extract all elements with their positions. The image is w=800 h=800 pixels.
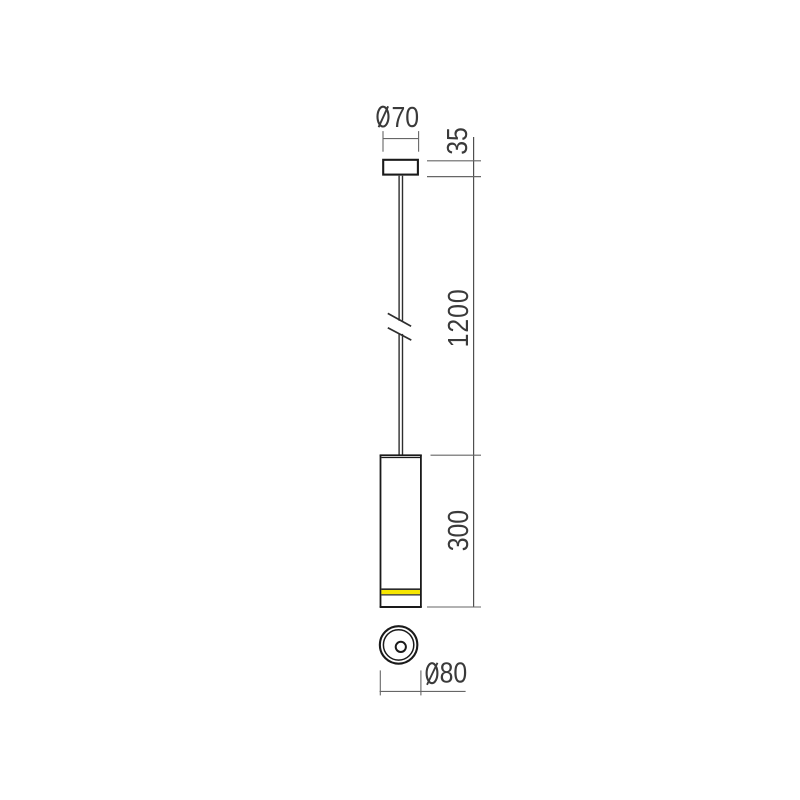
svg-text:80: 80: [440, 657, 468, 689]
svg-text:300: 300: [442, 510, 474, 551]
svg-text:70: 70: [392, 101, 420, 133]
svg-text:35: 35: [441, 127, 473, 155]
svg-text:1200: 1200: [442, 288, 474, 347]
